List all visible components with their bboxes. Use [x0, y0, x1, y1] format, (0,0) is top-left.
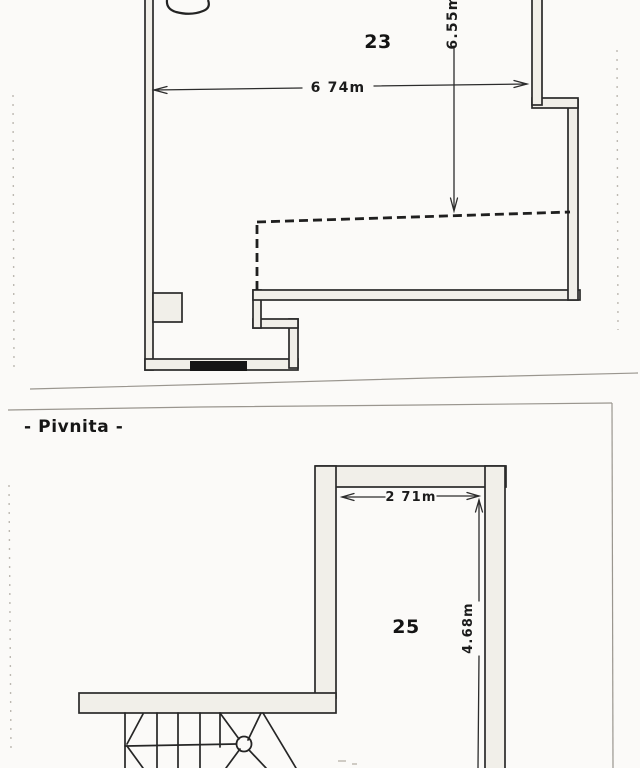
scanned-floorplan-page: 6 74m 6.55m 23 - Pivnita -	[0, 0, 640, 768]
upper-page-left-border	[13, 95, 14, 370]
staircase	[125, 713, 296, 768]
room23-right-wall-lower	[568, 100, 578, 300]
room25-top-wall	[316, 466, 506, 487]
dim-line-left-segment	[154, 88, 302, 90]
dim-label-width-room25: 2 71m	[385, 490, 436, 505]
room23-walls	[145, 0, 580, 370]
dashed-horizontal-line	[257, 212, 570, 222]
door-threshold	[190, 361, 247, 371]
stair-winder-line	[127, 746, 143, 768]
room25-left-wall	[315, 466, 336, 698]
lower-page-top-border	[8, 403, 612, 410]
lower-page-right-border	[612, 403, 613, 768]
stair-winder-line	[248, 713, 261, 740]
room23-bottom-wall	[253, 290, 580, 300]
dim-line-right-segment	[374, 84, 527, 86]
dashed-projection-outline	[257, 212, 570, 290]
floorplan-drawing: 6 74m 6.55m 23 - Pivnita -	[0, 0, 640, 768]
upper-page-bottom-border	[30, 373, 638, 389]
pivnita-section-title: - Pivnita -	[24, 417, 123, 437]
stair-winder-line	[249, 750, 266, 768]
room25-number-label: 25	[392, 616, 419, 638]
dim-line-lower-segment	[478, 656, 479, 768]
room23-left-wall	[145, 0, 153, 370]
cutoff-door-mark	[167, 0, 209, 14]
upper-floorplan: 6 74m 6.55m 23	[13, 0, 638, 389]
stair-winder-line	[226, 749, 240, 768]
room25-walls	[79, 466, 506, 768]
stair-winder-line	[220, 713, 239, 739]
dim-label-depth-room23: 6.55m	[445, 0, 461, 50]
lower-floorplan: - Pivnita - 2 71m 4.68m	[8, 403, 613, 768]
room23-pier	[153, 293, 182, 322]
dimension-width-room23: 6 74m	[154, 80, 527, 96]
scan-speckle	[352, 763, 357, 765]
dimension-depth-room23: 6.55m	[445, 0, 461, 211]
dim-label-width-room23: 6 74m	[311, 80, 366, 96]
dim-label-depth-room25: 4.68m	[461, 602, 476, 654]
scan-speckle	[338, 760, 346, 762]
lower-page-left-border	[9, 485, 11, 750]
stair-edge-right	[263, 713, 296, 768]
stair-winder-line	[127, 714, 143, 744]
room25-right-wall	[485, 466, 505, 768]
dimension-depth-room25: 4.68m	[461, 500, 483, 768]
room23-number-label: 23	[364, 31, 391, 53]
dimension-width-room25: 2 71m	[342, 490, 479, 505]
upper-page-right-border	[617, 50, 618, 330]
room23-right-wall-upper	[532, 0, 542, 105]
stair-top-wall	[79, 693, 336, 713]
